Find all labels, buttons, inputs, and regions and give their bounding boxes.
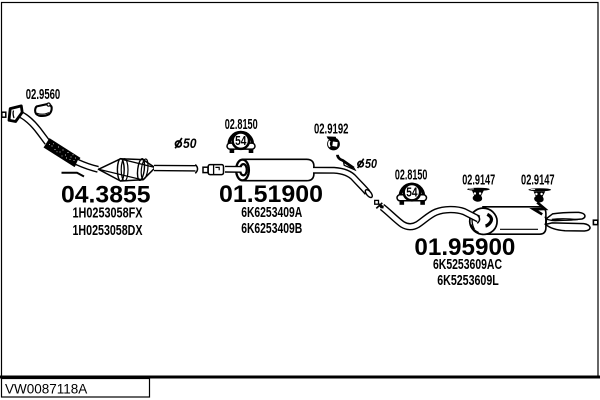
svg-text:02.9147: 02.9147 bbox=[462, 172, 495, 188]
svg-text:02.9147: 02.9147 bbox=[521, 172, 555, 188]
svg-text:02.9560: 02.9560 bbox=[26, 87, 61, 103]
svg-text:02.9192: 02.9192 bbox=[314, 121, 349, 137]
svg-text:50: 50 bbox=[365, 157, 377, 171]
svg-text:6K5253609AC: 6K5253609AC bbox=[433, 257, 502, 273]
svg-text:54: 54 bbox=[406, 186, 417, 200]
svg-text:6K6253409A: 6K6253409A bbox=[241, 205, 302, 221]
svg-text:VW0087118A: VW0087118A bbox=[5, 382, 87, 397]
svg-text:1H0253058DX: 1H0253058DX bbox=[73, 223, 143, 239]
svg-text:6K5253609L: 6K5253609L bbox=[437, 273, 499, 289]
svg-text:6K6253409B: 6K6253409B bbox=[241, 221, 302, 237]
svg-text:54: 54 bbox=[235, 134, 246, 148]
svg-text:02.8150: 02.8150 bbox=[225, 117, 258, 133]
svg-text:50: 50 bbox=[183, 136, 197, 151]
svg-text:1H0253058FX: 1H0253058FX bbox=[73, 206, 143, 222]
svg-text:02.8150: 02.8150 bbox=[395, 168, 428, 184]
svg-text:04.3855: 04.3855 bbox=[61, 182, 151, 209]
